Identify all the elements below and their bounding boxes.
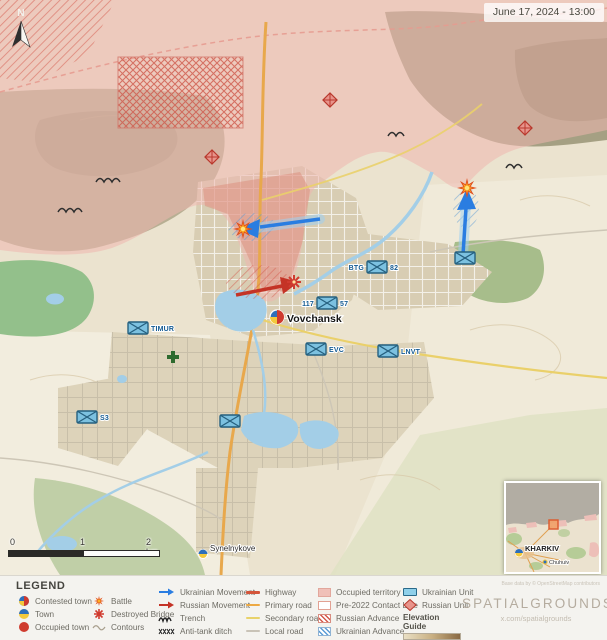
town-label-vovchansk: Vovchansk [287, 313, 342, 325]
legend-item-anti-tank-ditch: Anti-tank ditch [158, 626, 255, 636]
russian-unit-icon [403, 599, 417, 611]
trench-icon [158, 613, 175, 623]
russian-movement-icon [158, 600, 175, 610]
brand-name: SPATIALGROUNDS [462, 596, 607, 611]
town-marker-synelnykove [199, 550, 208, 559]
svg-text:82: 82 [390, 265, 398, 272]
date-badge: June 17, 2024 - 13:00 [484, 3, 604, 22]
compass-n-label: N [17, 8, 24, 19]
destroyed-bridge-icon [287, 275, 301, 289]
legend-col-movement: Ukrainian Movement Russian Movement Tren… [158, 587, 255, 636]
inset-town-label: Chuhuiv [549, 560, 569, 566]
contested-town-marker-vovchansk [270, 310, 284, 324]
inset-city-label: KHARKIV [525, 544, 559, 553]
anti-tank-ditch-icon [158, 626, 175, 636]
ukrainian-unit-icon [403, 588, 417, 596]
brand-block: Base data by © OpenStreetMap contributor… [468, 576, 604, 640]
contact-line-icon [318, 601, 331, 610]
svg-text:57: 57 [340, 301, 348, 308]
legend-item-primary-road: Primary road [246, 600, 323, 610]
attribution-text: Base data by © OpenStreetMap contributor… [502, 581, 600, 587]
russian-advance-icon [318, 614, 331, 623]
ukrainian-movement-icon [158, 587, 175, 597]
ukrainian-advance-icon [318, 627, 331, 636]
inset-kharkiv-marker [515, 549, 523, 557]
contours-icon [92, 621, 106, 633]
map-screenshot: BTG 82 117 57 EVC LNVT TIMUR S3 Vovchans… [0, 0, 607, 640]
legend-item-town: Town [18, 609, 92, 619]
local-road-icon [246, 630, 260, 632]
inset-current-view-marker [549, 520, 558, 529]
brand-handle-link[interactable]: x.com/spatialgrounds [468, 614, 604, 623]
legend-col-towns: Contested town Town Occupied town [18, 596, 92, 632]
occupied-territory-icon [318, 588, 331, 597]
legend-title: LEGEND [16, 580, 65, 592]
contested-town-icon [18, 595, 30, 607]
town-icon [18, 608, 30, 620]
legend-item-occupied-town: Occupied town [18, 622, 92, 632]
battle-icon [233, 219, 253, 239]
svg-text:117: 117 [302, 301, 314, 308]
secondary-road-icon [246, 617, 260, 619]
elevation-gradient-bar [403, 633, 461, 640]
town-label-synelnykove: Synelnykove [210, 544, 256, 553]
elevation-guide: Elevation Guide Lowlands Mountains [403, 613, 463, 640]
legend-item-local-road: Local road [246, 626, 323, 636]
legend-item-secondary-road: Secondary road [246, 613, 323, 623]
svg-text:S3: S3 [100, 415, 109, 422]
legend-item-highway: Highway [246, 587, 323, 597]
legend-col-roads: Highway Primary road Secondary road Loca… [246, 587, 323, 636]
legend-item-contested-town: Contested town [18, 596, 92, 606]
svg-text:BTG: BTG [349, 265, 365, 272]
north-arrow-icon [12, 21, 21, 47]
highway-icon [246, 591, 260, 594]
scale-bar-rule [8, 550, 160, 557]
scale-bar: 0 1 2 km [8, 537, 163, 561]
scale-one: 1 [80, 537, 85, 547]
legend-panel: LEGEND Contested town Town Occupied town… [0, 575, 607, 640]
legend-item-ukrainian-movement: Ukrainian Movement [158, 587, 255, 597]
primary-road-icon [246, 604, 260, 607]
elevation-guide-title: Elevation Guide [403, 613, 463, 631]
destroyed-bridge-icon [92, 608, 106, 620]
compass: N [8, 5, 34, 56]
svg-text:EVC: EVC [329, 347, 344, 354]
svg-text:LNVT: LNVT [401, 349, 421, 356]
legend-item-russian-movement: Russian Movement [158, 600, 255, 610]
inset-chuhuiv-dot [543, 560, 547, 564]
occupied-town-icon [18, 621, 30, 633]
battle-icon [92, 595, 106, 607]
legend-item-trench: Trench [158, 613, 255, 623]
scale-zero: 0 [10, 537, 15, 547]
inset-locator-map: KHARKIV Chuhuiv [504, 481, 601, 574]
battle-icon [457, 178, 477, 198]
svg-text:TIMUR: TIMUR [151, 326, 174, 333]
